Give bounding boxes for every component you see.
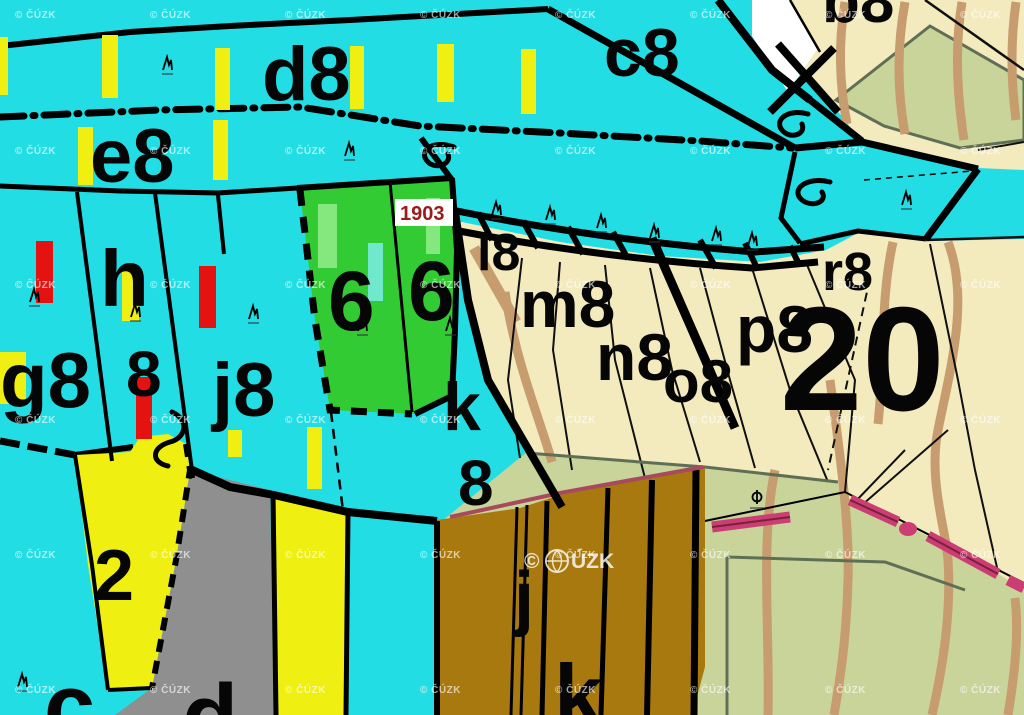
watermark-small: © ČÚZK (960, 683, 1001, 696)
watermark-small: © ČÚZK (420, 683, 461, 696)
watermark-small: © ČÚZK (960, 144, 1001, 157)
watermark-small: © ČÚZK (960, 548, 1001, 561)
label-j8: j8 (210, 348, 275, 433)
road-pink-dot (899, 522, 917, 536)
watermark-small: © ČÚZK (15, 683, 56, 696)
watermark-small: © ČÚZK (690, 144, 731, 157)
watermark-small: © ČÚZK (420, 278, 461, 291)
watermark-small: © ČÚZK (285, 548, 326, 561)
watermark-small: © ČÚZK (150, 683, 191, 696)
watermark-small: © ČÚZK (420, 548, 461, 561)
watermark-small: © ČÚZK (420, 8, 461, 21)
cadastral-map-viewer: 1903 d8 c8 b8 e8 g8 h 8 j8 k 8 l8 m8 n8 … (0, 0, 1024, 715)
label-g8: g8 (0, 336, 91, 424)
watermark-small: © ČÚZK (420, 144, 461, 157)
watermark-small: © ČÚZK (825, 413, 866, 426)
label-c8: c8 (604, 15, 680, 91)
watermark-small: © ČÚZK (15, 8, 56, 21)
watermark-small: © ČÚZK (15, 548, 56, 561)
watermark-small: © ČÚZK (285, 683, 326, 696)
watermark-copyright: © (524, 550, 540, 573)
watermark-small: © ČÚZK (420, 413, 461, 426)
watermark-text: ÚZK (571, 549, 614, 573)
watermark-small: © ČÚZK (555, 278, 596, 291)
watermark-small: © ČÚZK (690, 278, 731, 291)
watermark-small: © ČÚZK (825, 278, 866, 291)
watermark-small: © ČÚZK (825, 683, 866, 696)
watermark-small: © ČÚZK (690, 413, 731, 426)
watermark-small: © ČÚZK (150, 413, 191, 426)
watermark-small: © ČÚZK (285, 144, 326, 157)
parcel-number-1903: 1903 (400, 203, 445, 225)
label-l8: l8 (477, 224, 520, 282)
label-6-left: 6 (328, 254, 375, 348)
watermark-small: © ČÚZK (690, 548, 731, 561)
label-h: h (100, 234, 149, 323)
label-k: k (443, 369, 481, 445)
label-n8: n8 (596, 320, 673, 394)
watermark-small: © ČÚZK (555, 683, 596, 696)
label-h8-digit: 8 (126, 338, 162, 410)
label-o8: o8 (663, 348, 733, 415)
watermark-small: © ČÚZK (555, 8, 596, 21)
label-2: 2 (94, 536, 134, 616)
watermark-small: © ČÚZK (960, 413, 1001, 426)
label-d8: d8 (262, 32, 351, 117)
watermark-small: © ČÚZK (285, 278, 326, 291)
parcel-yellow-strip[interactable] (274, 495, 348, 715)
label-6-right: 6 (408, 244, 455, 338)
watermark-small: © ČÚZK (150, 278, 191, 291)
watermark-small: © ČÚZK (960, 8, 1001, 21)
label-k-bottom: k (554, 646, 604, 715)
watermark-small: © ČÚZK (15, 144, 56, 157)
watermark-small: © ČÚZK (555, 144, 596, 157)
watermark-small: © ČÚZK (555, 413, 596, 426)
watermark-small: © ČÚZK (825, 144, 866, 157)
watermark-small: © ČÚZK (690, 8, 731, 21)
watermark-small: © ČÚZK (285, 8, 326, 21)
watermark-small: © ČÚZK (150, 8, 191, 21)
watermark-small: © ČÚZK (285, 413, 326, 426)
watermark-small: © ČÚZK (150, 144, 191, 157)
watermark-small: © ČÚZK (150, 548, 191, 561)
watermark-small: © ČÚZK (825, 548, 866, 561)
parcel-number-box[interactable]: 1903 (395, 199, 453, 226)
label-k8-digit: 8 (458, 447, 494, 519)
watermark-small: © ČÚZK (690, 683, 731, 696)
map-canvas[interactable]: 1903 d8 c8 b8 e8 g8 h 8 j8 k 8 l8 m8 n8 … (0, 0, 1024, 715)
watermark-small: © ČÚZK (15, 278, 56, 291)
watermark-small: © ČÚZK (15, 413, 56, 426)
watermark-small: © ČÚZK (825, 8, 866, 21)
watermark-small: © ČÚZK (960, 278, 1001, 291)
